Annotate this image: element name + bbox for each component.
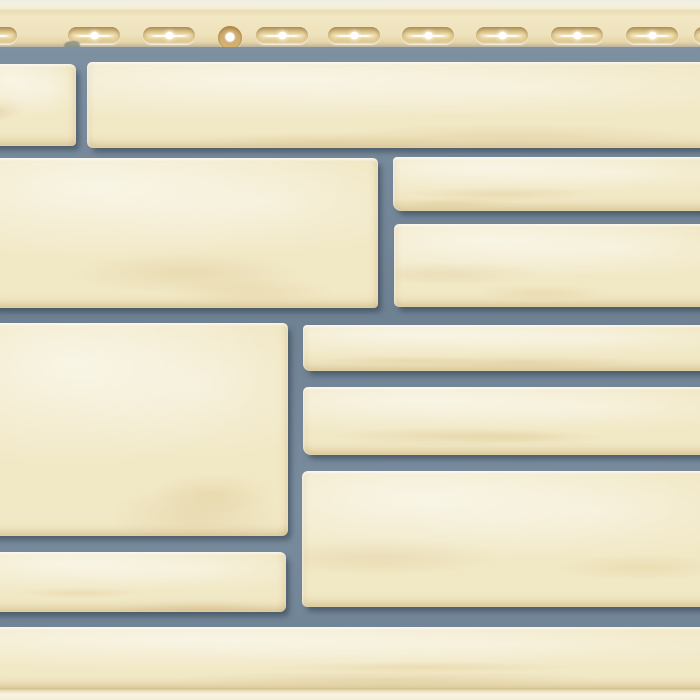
stone-block (0, 158, 378, 308)
fastening-slot (328, 27, 380, 44)
fastening-slot (256, 27, 308, 44)
fastening-slot (143, 27, 195, 44)
stone-block (394, 224, 700, 307)
fastening-slot (626, 27, 678, 44)
stone-block (303, 325, 700, 371)
surface-blemish (64, 41, 80, 47)
round-nail-hole (218, 26, 242, 47)
stone-block (0, 627, 700, 689)
fastening-slot (551, 27, 603, 44)
stone-block (0, 552, 286, 612)
fastening-slot (0, 27, 17, 44)
stone-block (0, 323, 288, 536)
stone-block (87, 62, 700, 148)
panel-bottom-edge (0, 688, 700, 700)
fastening-slot (694, 27, 700, 44)
stone-block (303, 387, 700, 455)
fastening-slot (402, 27, 454, 44)
stone-block (302, 471, 700, 607)
nailing-strip (0, 0, 700, 47)
stone-block (393, 157, 700, 211)
masonry-layer (0, 0, 700, 700)
facade-panel (0, 0, 700, 700)
stone-block (0, 64, 76, 146)
fastening-slot (476, 27, 528, 44)
